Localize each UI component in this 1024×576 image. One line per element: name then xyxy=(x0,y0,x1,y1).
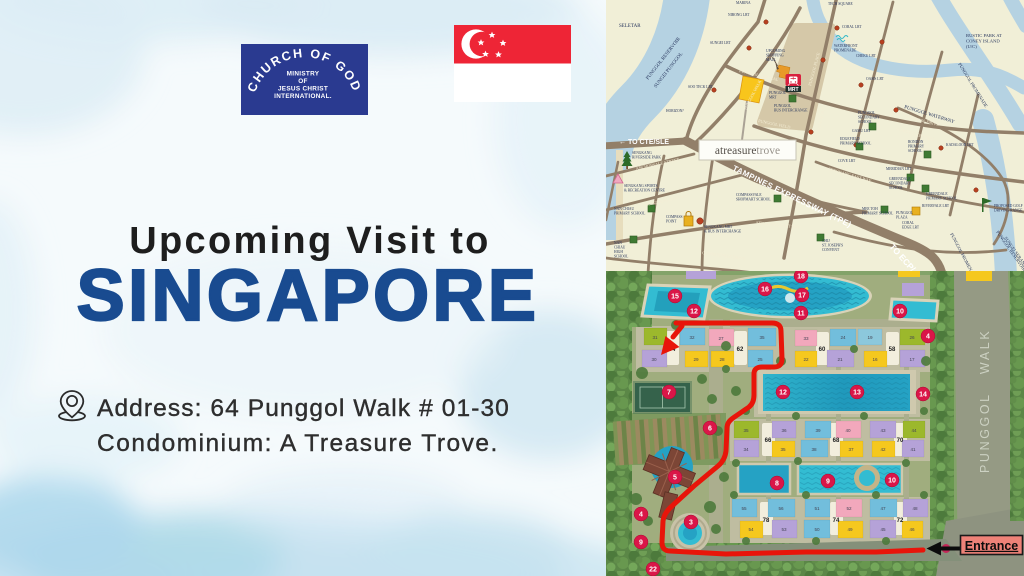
svg-text:OASIS LRT: OASIS LRT xyxy=(866,77,885,81)
svg-text:9: 9 xyxy=(826,479,830,486)
svg-text:RONDON: RONDON xyxy=(908,140,924,144)
svg-text:42: 42 xyxy=(880,447,886,452)
svg-text:GREENDALE: GREENDALE xyxy=(889,177,911,181)
svg-text:41: 41 xyxy=(910,447,916,452)
svg-text:12: 12 xyxy=(779,390,787,397)
svg-text:MEE TOH: MEE TOH xyxy=(862,207,878,211)
svg-text:53: 53 xyxy=(781,527,787,532)
svg-text:CORAL: CORAL xyxy=(902,221,914,225)
svg-text:CHIJ: CHIJ xyxy=(822,239,830,243)
svg-text:35: 35 xyxy=(780,447,786,452)
svg-text:PROPOSED GOLF: PROPOSED GOLF xyxy=(994,204,1023,208)
svg-text:31: 31 xyxy=(652,335,658,340)
svg-text:Entrance: Entrance xyxy=(965,539,1019,553)
svg-text:PROMENADE: PROMENADE xyxy=(834,49,857,53)
svg-text:35: 35 xyxy=(759,335,765,340)
svg-text:21: 21 xyxy=(837,357,843,362)
svg-text:CHIAU: CHIAU xyxy=(614,246,626,250)
svg-text:SOO TECK LRT: SOO TECK LRT xyxy=(688,85,714,89)
svg-text:24: 24 xyxy=(840,335,846,340)
svg-text:19: 19 xyxy=(867,335,873,340)
svg-text:SCHOOL: SCHOOL xyxy=(889,186,903,190)
svg-text:13: 13 xyxy=(853,390,861,397)
svg-text:4: 4 xyxy=(639,512,643,519)
svg-text:10: 10 xyxy=(888,478,896,485)
svg-text:← TO CTE/SLE: ← TO CTE/SLE xyxy=(619,139,669,146)
svg-text:12: 12 xyxy=(690,309,698,316)
svg-text:OF: OF xyxy=(298,78,307,85)
svg-text:MARINA: MARINA xyxy=(736,1,751,5)
svg-text:PUNGGOL WALK: PUNGGOL WALK xyxy=(978,329,992,473)
svg-text:COMPASSVALE: COMPASSVALE xyxy=(736,193,762,197)
svg-text:22: 22 xyxy=(803,357,809,362)
svg-text:NIBONG LRT: NIBONG LRT xyxy=(728,13,750,17)
svg-text:50: 50 xyxy=(814,527,820,532)
svg-text:PRIMARY SCHOOL: PRIMARY SCHOOL xyxy=(840,142,871,146)
svg-text:3: 3 xyxy=(689,520,693,527)
svg-text:DRIVING RANGE: DRIVING RANGE xyxy=(994,209,1023,213)
svg-text:& BUS INTERCHANGE: & BUS INTERCHANGE xyxy=(704,230,742,234)
svg-text:72: 72 xyxy=(897,518,904,524)
svg-text:9: 9 xyxy=(639,540,643,547)
svg-text:46: 46 xyxy=(909,527,915,532)
svg-text:32: 32 xyxy=(689,335,695,340)
svg-text:5: 5 xyxy=(673,475,677,482)
svg-text:MINISTRY: MINISTRY xyxy=(287,71,320,78)
svg-text:CONVENT: CONVENT xyxy=(822,248,840,252)
svg-text:MRT: MRT xyxy=(769,96,777,100)
svg-text:4: 4 xyxy=(926,334,930,341)
svg-text:18: 18 xyxy=(797,274,805,281)
svg-text:PRIMARY SCHOOL: PRIMARY SCHOOL xyxy=(862,212,893,216)
svg-text:PUNGGOL: PUNGGOL xyxy=(769,91,786,95)
svg-text:PLAZA: PLAZA xyxy=(896,216,908,220)
svg-text:NAN CHIAU: NAN CHIAU xyxy=(614,207,634,211)
svg-text:17: 17 xyxy=(909,357,915,362)
svg-text:16: 16 xyxy=(872,357,878,362)
svg-text:36: 36 xyxy=(781,428,787,433)
svg-text:29: 29 xyxy=(693,357,699,362)
svg-text:SECONDARY: SECONDARY xyxy=(889,182,911,186)
svg-text:43: 43 xyxy=(880,428,886,433)
svg-text:& RECREATION CENTRE: & RECREATION CENTRE xyxy=(624,189,666,193)
svg-text:48: 48 xyxy=(912,506,918,511)
svg-text:58: 58 xyxy=(889,347,896,353)
svg-text:WATERFRONT: WATERFRONT xyxy=(834,44,859,48)
svg-text:17: 17 xyxy=(798,293,806,300)
svg-text:16: 16 xyxy=(761,287,769,294)
svg-text:PRIMARY SCHOOL: PRIMARY SCHOOL xyxy=(614,212,645,216)
svg-text:22: 22 xyxy=(649,567,657,574)
svg-text:37: 37 xyxy=(848,447,854,452)
svg-text:PRIMARY: PRIMARY xyxy=(908,145,925,149)
svg-text:26: 26 xyxy=(909,335,915,340)
svg-text:SENGKANG SPORTS: SENGKANG SPORTS xyxy=(624,184,658,188)
svg-text:52: 52 xyxy=(846,506,852,511)
svg-text:RIVERVALE LRT: RIVERVALE LRT xyxy=(922,204,950,208)
svg-text:49: 49 xyxy=(847,527,853,532)
svg-text:NAN: NAN xyxy=(614,241,622,245)
svg-text:30: 30 xyxy=(651,357,657,362)
svg-text:68: 68 xyxy=(833,438,840,444)
svg-text:COMPASS: COMPASS xyxy=(666,215,682,219)
svg-text:CORAL LRT: CORAL LRT xyxy=(842,25,862,29)
svg-text:SCHOOL: SCHOOL xyxy=(908,149,922,153)
svg-text:PUNGGOL: PUNGGOL xyxy=(858,111,875,115)
svg-text:55: 55 xyxy=(741,506,747,511)
svg-text:28: 28 xyxy=(719,357,725,362)
svg-text:27: 27 xyxy=(718,336,724,341)
svg-text:56: 56 xyxy=(778,506,784,511)
svg-text:40: 40 xyxy=(845,428,851,433)
svg-text:33: 33 xyxy=(803,336,809,341)
svg-text:GAMU LRT: GAMU LRT xyxy=(852,129,871,133)
svg-text:POINT: POINT xyxy=(666,220,677,224)
svg-text:70: 70 xyxy=(897,438,904,444)
svg-text:HIGH: HIGH xyxy=(614,250,623,254)
svg-text:SCHOOL: SCHOOL xyxy=(858,120,872,124)
svg-text:39: 39 xyxy=(815,428,821,433)
svg-text:COVE LRT: COVE LRT xyxy=(838,159,856,163)
svg-text:SHOPPING: SHOPPING xyxy=(766,54,784,58)
svg-text:SECONDARY: SECONDARY xyxy=(858,116,880,120)
svg-text:60: 60 xyxy=(819,347,826,353)
svg-text:35: 35 xyxy=(743,428,749,433)
svg-text:atreasuretrove: atreasuretrove xyxy=(715,145,780,157)
svg-text:SENGKANG: SENGKANG xyxy=(632,151,652,155)
svg-text:KADALOOR LRT: KADALOOR LRT xyxy=(946,143,974,147)
svg-text:25: 25 xyxy=(757,357,763,362)
svg-text:MRT: MRT xyxy=(788,87,799,93)
svg-text:6: 6 xyxy=(708,426,712,433)
svg-text:GREENDALE: GREENDALE xyxy=(926,192,948,196)
svg-text:RIVERSIDE PARK: RIVERSIDE PARK xyxy=(632,156,661,160)
svg-text:38: 38 xyxy=(811,447,817,452)
svg-text:RUSTIC PARK AT: RUSTIC PARK AT xyxy=(966,33,1002,38)
svg-text:PRIMARY SCHOOL: PRIMARY SCHOOL xyxy=(926,197,957,201)
svg-text:34: 34 xyxy=(743,447,749,452)
svg-text:MALL: MALL xyxy=(766,58,776,62)
svg-text:66: 66 xyxy=(765,438,772,444)
svg-text:SELETAR: SELETAR xyxy=(619,24,641,29)
svg-text:51: 51 xyxy=(814,506,820,511)
svg-text:74: 74 xyxy=(833,518,840,524)
svg-text:MERIDIAN LRT: MERIDIAN LRT xyxy=(886,167,912,171)
svg-text:CONEY ISLAND: CONEY ISLAND xyxy=(966,39,1000,44)
svg-text:7: 7 xyxy=(667,390,671,397)
svg-text:SUNGEI LRT: SUNGEI LRT xyxy=(710,41,731,45)
svg-text:SCHOOL: SCHOOL xyxy=(614,255,628,259)
svg-text:UPCOMING: UPCOMING xyxy=(766,49,786,53)
svg-text:INTERNATIONAL.: INTERNATIONAL. xyxy=(274,93,332,100)
svg-text:8: 8 xyxy=(775,481,779,488)
svg-text:11: 11 xyxy=(797,311,805,318)
svg-text:SHOPMART SCHOOL: SHOPMART SCHOOL xyxy=(736,198,771,202)
svg-text:47: 47 xyxy=(880,506,886,511)
svg-text:78: 78 xyxy=(763,518,770,524)
svg-text:BUS INTERCHANGE: BUS INTERCHANGE xyxy=(774,109,808,113)
svg-text:45: 45 xyxy=(880,527,886,532)
svg-text:PUNGGOL: PUNGGOL xyxy=(774,104,791,108)
svg-text:CHEKU LRT: CHEKU LRT xyxy=(856,54,877,58)
svg-text:TECH SQUARE: TECH SQUARE xyxy=(828,2,853,6)
svg-text:14: 14 xyxy=(919,392,927,399)
svg-text:44: 44 xyxy=(911,428,917,433)
svg-text:15: 15 xyxy=(671,294,679,301)
svg-text:54: 54 xyxy=(748,527,754,532)
svg-text:62: 62 xyxy=(737,347,744,353)
svg-text:PUNGGOL: PUNGGOL xyxy=(896,211,913,215)
svg-text:JESUS CHRIST: JESUS CHRIST xyxy=(278,86,328,93)
svg-text:10: 10 xyxy=(896,309,904,316)
svg-text:EDGEFIELD: EDGEFIELD xyxy=(840,137,860,141)
svg-text:ST. JOSEPH'S: ST. JOSEPH'S xyxy=(822,244,843,248)
svg-text:SENGKANG MRT: SENGKANG MRT xyxy=(704,225,733,229)
svg-text:(U/C): (U/C) xyxy=(966,44,977,49)
svg-text:HORIZON?: HORIZON? xyxy=(666,109,684,113)
svg-text:EDGE LRT: EDGE LRT xyxy=(902,226,920,230)
